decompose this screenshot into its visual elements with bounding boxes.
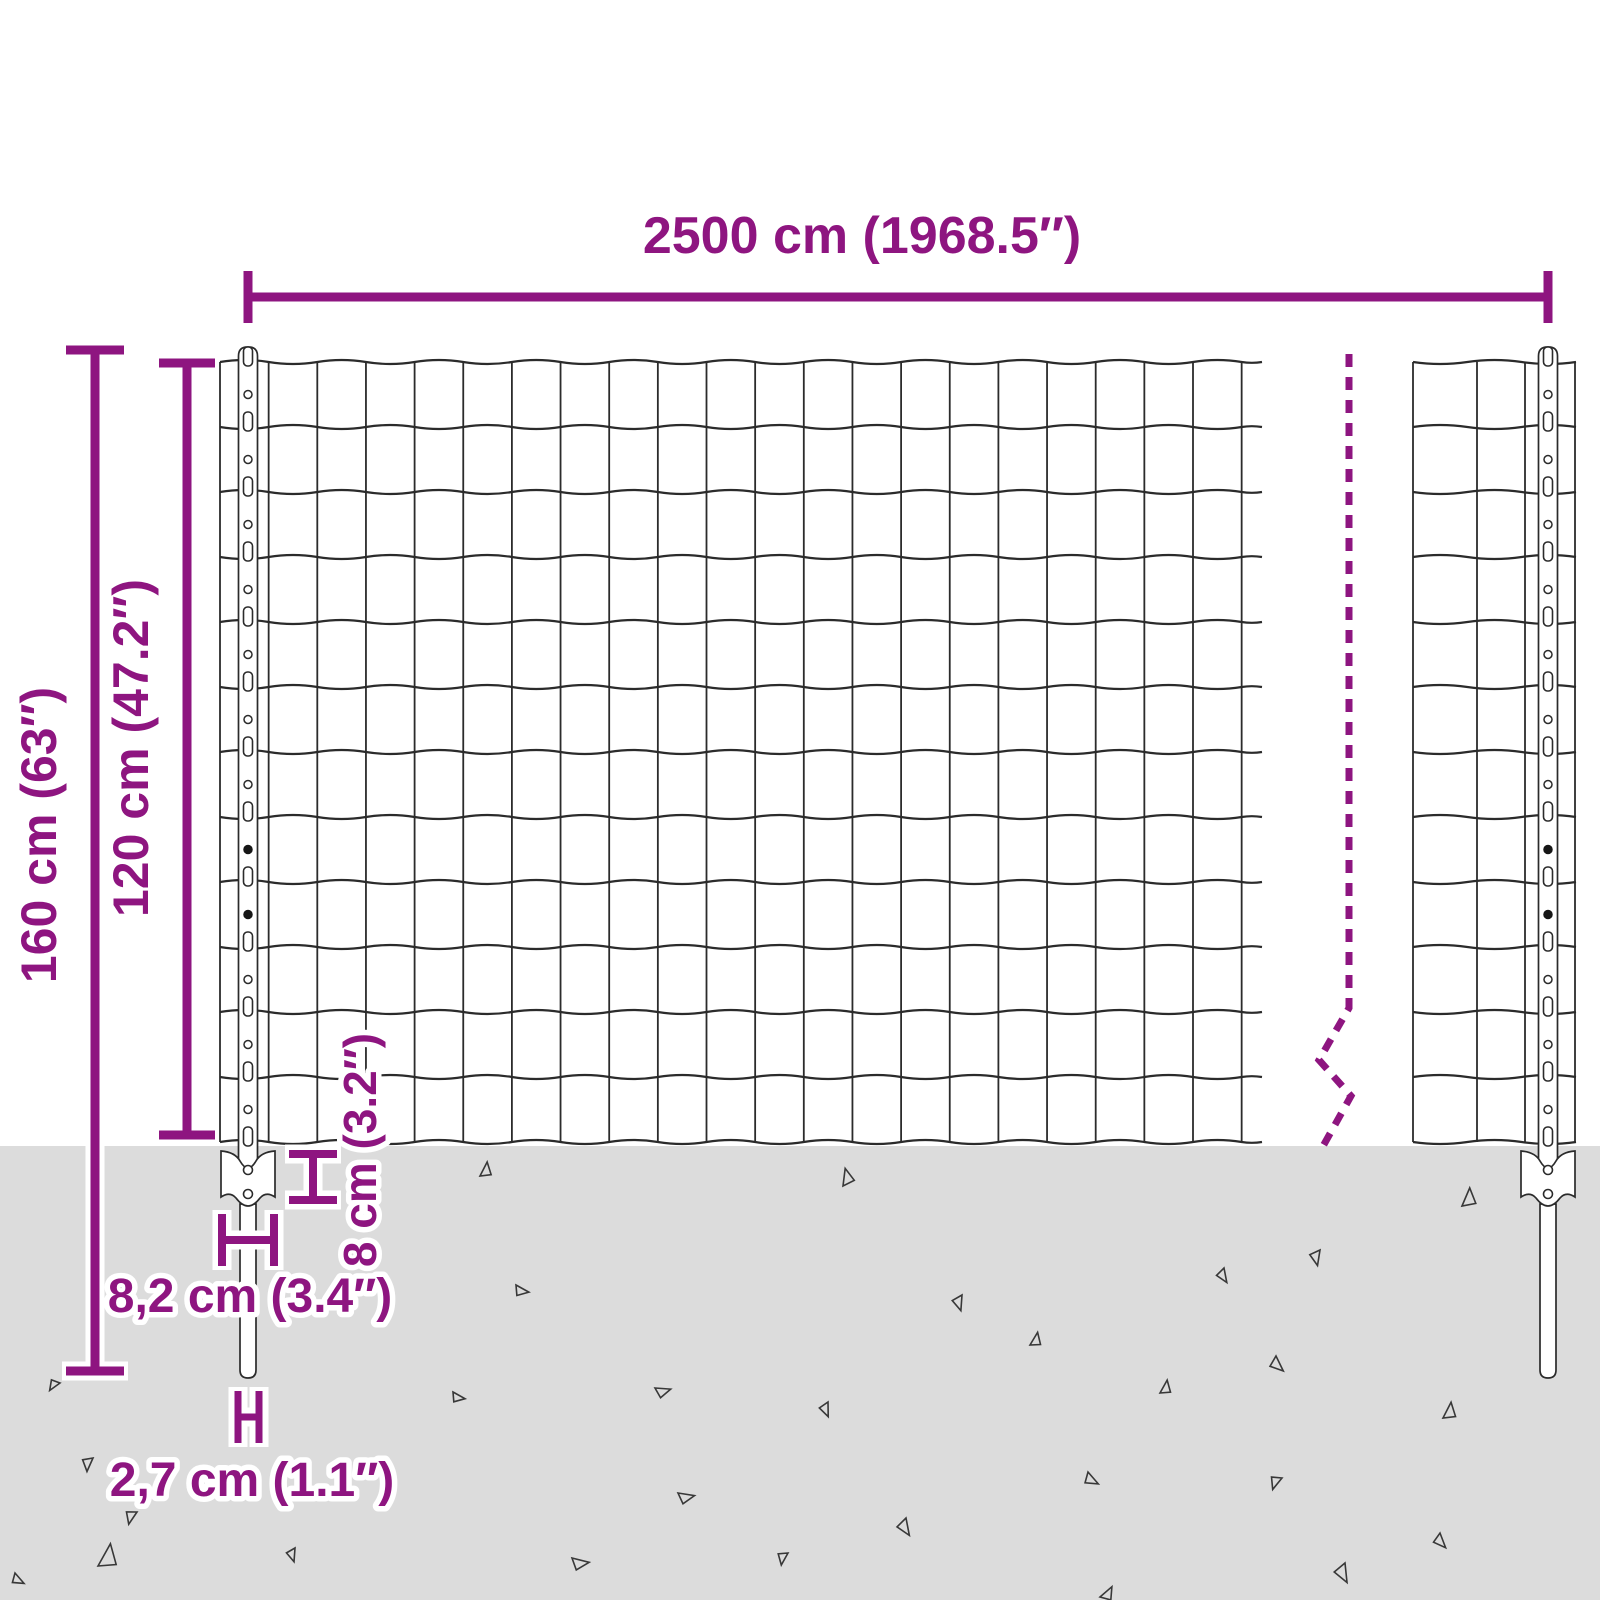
post-hole xyxy=(1544,586,1552,594)
post-wire-slot xyxy=(1544,1062,1553,1081)
dim-total-width xyxy=(248,271,1548,323)
post-hole xyxy=(244,1041,252,1049)
post-hole xyxy=(244,391,252,399)
post-hole xyxy=(244,456,252,464)
post-hole xyxy=(244,781,252,789)
post-hole xyxy=(1544,1106,1552,1114)
post-wire-slot xyxy=(1544,1127,1553,1146)
mesh-horizontal-wire xyxy=(220,685,1262,689)
post-wire-slot xyxy=(244,802,253,821)
anchor-plate-hole xyxy=(244,1190,253,1199)
post-wire-slot xyxy=(244,542,253,561)
mesh-horizontal-wire xyxy=(220,945,1262,949)
fence-dimension-diagram: 2500 cm (1968.5″) 160 cm (63″) 120 cm (4… xyxy=(0,0,1600,1600)
mesh-horizontal-wire xyxy=(220,815,1262,819)
dim-fence-height xyxy=(159,363,215,1135)
mesh-horizontal-wire xyxy=(220,555,1262,559)
post-wire-slot xyxy=(244,477,253,496)
post-wire-slot xyxy=(244,932,253,951)
mesh-horizontal-wire xyxy=(220,360,1262,364)
post-hole xyxy=(244,651,252,659)
mesh-horizontal-wire xyxy=(220,1010,1262,1014)
post-wire-slot xyxy=(1544,412,1553,431)
post-wire-slot xyxy=(244,867,253,886)
total-width-label: 2500 cm (1968.5″) xyxy=(643,207,1081,265)
mesh-horizontal-wire xyxy=(220,425,1262,429)
post-hole xyxy=(244,976,252,984)
post-bolt-hole-filled xyxy=(1544,911,1552,919)
post-wire-slot xyxy=(1544,542,1553,561)
anchor-plate-hole xyxy=(1544,1166,1553,1175)
panel-break-line xyxy=(1319,354,1351,1148)
post-hole xyxy=(1544,716,1552,724)
mesh-horizontal-wire xyxy=(220,750,1262,754)
post-hole xyxy=(1544,456,1552,464)
fence-height-label: 120 cm (47.2″) xyxy=(103,579,159,917)
post-hole xyxy=(1544,651,1552,659)
post-wire-slot xyxy=(1544,997,1553,1016)
post-wire-slot xyxy=(1544,802,1553,821)
post-wire-slot xyxy=(1544,672,1553,691)
post-wire-slot xyxy=(244,347,253,366)
total-height-label: 160 cm (63″) xyxy=(11,687,67,983)
post-bolt-hole-filled xyxy=(1544,846,1552,854)
wire-mesh xyxy=(220,360,1576,1144)
mesh-horizontal-wire xyxy=(220,490,1262,494)
anchor-width-label: 8,2 cm (3.4″) xyxy=(108,1270,392,1323)
post-hole xyxy=(244,1106,252,1114)
post-bolt-hole-filled xyxy=(244,846,252,854)
post-hole xyxy=(244,586,252,594)
anchor-height-label: 8 cm (3.2″) xyxy=(334,1033,386,1267)
post-hole xyxy=(1544,521,1552,529)
post-wire-slot xyxy=(244,1062,253,1081)
post-wire-slot xyxy=(244,607,253,626)
post-wire-slot xyxy=(1544,737,1553,756)
post-wire-slot xyxy=(244,672,253,691)
post-wire-slot xyxy=(244,737,253,756)
mesh-horizontal-wire xyxy=(220,880,1262,884)
post-hole xyxy=(1544,976,1552,984)
post-bolt-hole-filled xyxy=(244,911,252,919)
post-hole xyxy=(1544,781,1552,789)
mesh-horizontal-wire xyxy=(220,620,1262,624)
post-hole xyxy=(244,716,252,724)
post-wire-slot xyxy=(244,997,253,1016)
ground-spike xyxy=(1540,1204,1556,1378)
post-wire-slot xyxy=(1544,607,1553,626)
post-hole xyxy=(1544,391,1552,399)
post-wire-slot xyxy=(1544,347,1553,366)
post-hole xyxy=(1544,1041,1552,1049)
post-wire-slot xyxy=(1544,867,1553,886)
break-dashed-line xyxy=(1319,354,1351,1148)
post-wire-slot xyxy=(1544,932,1553,951)
post-wire-slot xyxy=(244,412,253,431)
post-wire-slot xyxy=(1544,477,1553,496)
spike-width-label: 2,7 cm (1.1″) xyxy=(110,1454,394,1507)
post-wire-slot xyxy=(244,1127,253,1146)
anchor-plate-hole xyxy=(244,1166,253,1175)
post-hole xyxy=(244,521,252,529)
anchor-plate-hole xyxy=(1544,1190,1553,1199)
